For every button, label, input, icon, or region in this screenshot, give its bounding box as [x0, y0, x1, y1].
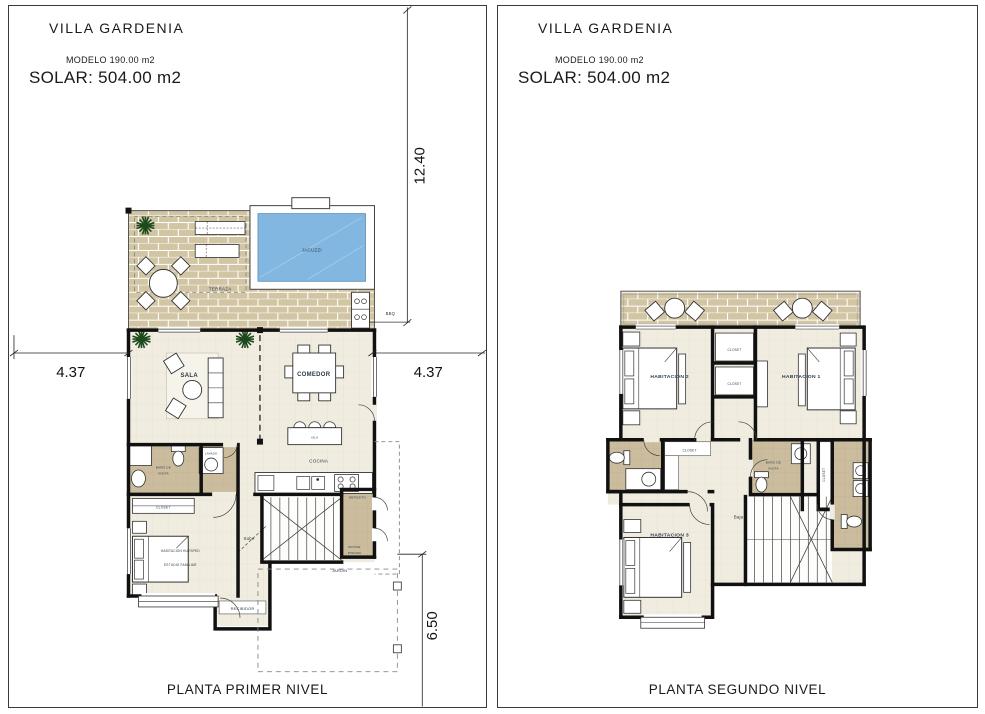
- habitacion-3-label: HABITACION 3: [650, 532, 689, 538]
- dim-12-40: 12.40: [411, 147, 428, 184]
- bbq-label: BBQ: [386, 311, 396, 316]
- dim-4-37-right: 4.37: [414, 364, 443, 381]
- motor-label-1: MOTOR: [349, 545, 361, 549]
- column: [257, 439, 263, 445]
- closet-label: CLOSET: [156, 505, 171, 509]
- jacuzzi: JACUZZI: [250, 198, 374, 290]
- project-title: VILLA GARDENIA: [538, 20, 673, 36]
- first-level-drawing: JACUZZI TERRAZA: [9, 6, 486, 707]
- plan-caption-1: PLANTA PRIMER NIVEL: [9, 682, 486, 697]
- cocina-label: COCINA: [309, 459, 329, 464]
- comedor-label: COMEDOR: [297, 372, 331, 378]
- living-room-set: [164, 353, 224, 419]
- jacuzzi-label: JACUZZI: [302, 247, 322, 252]
- column: [257, 327, 263, 333]
- lot-area-text: SOLAR: 504.00 m2: [518, 68, 670, 88]
- lot-area-text: SOLAR: 504.00 m2: [29, 68, 181, 88]
- recibidor-label: RECIBIDOR: [231, 606, 255, 611]
- isla-label: ISLA: [311, 436, 318, 440]
- habitacion-huesped-label: HABITACION HUESPED: [161, 549, 200, 553]
- carport-post: [393, 645, 401, 653]
- lavado-label: LAVADO: [205, 452, 218, 456]
- hall-closet: CLOSET: [819, 442, 831, 508]
- model-area-text: MODELO 190.00 m2: [66, 55, 155, 65]
- bano-visita-label-2: VISITA: [158, 472, 169, 476]
- second-level-drawing: HABITACION 2 HABITACION 1 CLOSET CLOSET: [498, 6, 977, 707]
- toilet-icon: [841, 515, 861, 529]
- habitacion-1-label: HABITACION 1: [782, 374, 821, 380]
- toilet-icon: [754, 472, 768, 492]
- bbq-grill: [352, 292, 370, 328]
- model-area-text: MODELO 190.00 m2: [555, 55, 644, 65]
- project-title: VILLA GARDENIA: [49, 20, 184, 36]
- habitacion-2-label: HABITACION 2: [650, 374, 689, 380]
- second-level-panel: HABITACION 2 HABITACION 1 CLOSET CLOSET: [497, 5, 978, 708]
- deposito-label: DEPOSITO: [349, 495, 366, 499]
- carport-post: [393, 582, 401, 590]
- toilet-icon: [171, 446, 185, 466]
- sube-label: Sube: [243, 536, 254, 541]
- kitchen-island: ISLA: [288, 422, 342, 445]
- terraza-label: TERRAZA: [209, 286, 233, 291]
- motor-label-2: PISCINA: [348, 551, 361, 555]
- sala-label: SALA: [181, 373, 199, 379]
- bano-visita-label-1: BAÑO DE: [156, 465, 171, 470]
- first-level-panel: JACUZZI TERRAZA: [8, 5, 487, 708]
- dim-6-50: 6.50: [424, 611, 441, 640]
- bano-visita-label-1: BAÑO DE: [766, 460, 781, 465]
- closet-label: CLOSET: [683, 449, 697, 453]
- estudio-familiar-label: ESTUDIO FAMILIAR: [164, 563, 197, 567]
- closet-label: CLOSET: [728, 348, 742, 352]
- bano-visita-label-2: VISITA: [768, 467, 779, 471]
- toilet-icon: [609, 451, 629, 465]
- floor-plan-sheet: JACUZZI TERRAZA: [0, 0, 985, 714]
- bedroom-closet: CLOSET: [132, 498, 194, 513]
- dim-4-37-left: 4.37: [56, 364, 85, 381]
- balcony: [621, 291, 860, 327]
- baja-label: Baja: [734, 515, 744, 520]
- closet-label-vertical: CLOSET: [822, 468, 826, 482]
- closet-label: CLOSET: [728, 382, 742, 386]
- plan-caption-2: PLANTA SEGUNDO NIVEL: [498, 682, 977, 697]
- foyer: RECIBIDOR: [219, 601, 266, 614]
